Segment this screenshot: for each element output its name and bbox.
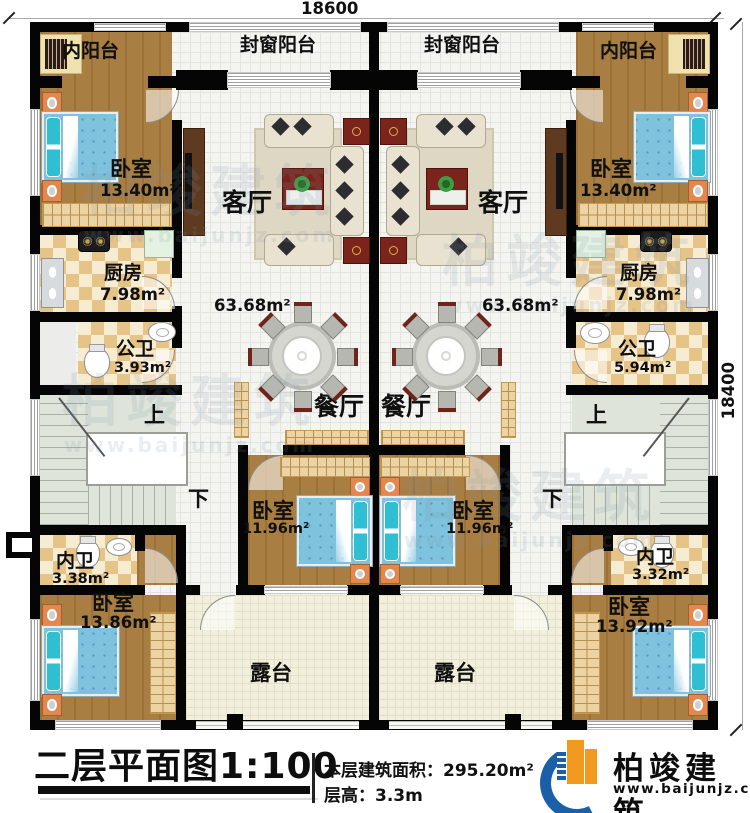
plan-title: 二层平面图1:100 [34, 737, 339, 789]
window [709, 620, 717, 700]
brand-logo-windows [557, 750, 566, 782]
fridge-icon [576, 230, 606, 258]
floor-area-text: 本层建筑面积：295.20m² [324, 756, 534, 781]
column-nub-inner [12, 538, 32, 552]
wall [483, 585, 512, 595]
wall [566, 120, 576, 232]
wardrobe [280, 457, 370, 477]
floor-height-text: 层高：3.3m [324, 781, 423, 806]
wall [562, 525, 572, 730]
window [265, 587, 347, 593]
terrace-column [227, 714, 243, 730]
dining-chair [481, 348, 499, 366]
bed-bottom-left [42, 626, 119, 696]
stove-icon [78, 230, 110, 252]
sofa [264, 234, 334, 266]
label-publicbath-left: 公卫 [116, 340, 154, 360]
coffee-table-glass [286, 190, 322, 206]
title-underline [38, 786, 310, 794]
label-kitchen-left: 厨房 [104, 264, 142, 284]
nightstand [42, 694, 62, 716]
wall [347, 585, 369, 595]
label-living-right: 客厅 [478, 190, 528, 216]
wall [548, 585, 562, 595]
wall [186, 585, 200, 595]
wall [176, 525, 186, 730]
window [588, 721, 692, 729]
wall [30, 76, 62, 88]
nightstand [350, 477, 370, 497]
window [388, 23, 558, 31]
label-unit-area-right: 63.68m² [482, 297, 559, 314]
terrace-railing [389, 721, 552, 729]
sideboard [381, 430, 465, 445]
nightstand [380, 564, 400, 584]
dining-chair [438, 305, 456, 323]
dimension-line-right [742, 22, 743, 730]
window [401, 587, 483, 593]
wall [603, 535, 613, 551]
wall [236, 585, 265, 595]
bed-top-left [42, 112, 118, 182]
label-kitchen-left-area: 7.98m² [100, 286, 165, 303]
brand-logo-building [585, 749, 597, 784]
label-bedroom-mid-right: 卧室 [452, 500, 494, 522]
label-bedroom-bl-area: 13.86m² [80, 614, 157, 631]
label-bedroom-mid-left-area: 11.96m² [242, 522, 309, 537]
wall [135, 535, 145, 551]
label-bedroom-bl: 卧室 [92, 592, 134, 614]
bed-bottom-right [633, 626, 710, 696]
wall [686, 76, 718, 88]
window [709, 255, 717, 310]
dimension-right-label: 18400 [720, 362, 737, 419]
label-inner-balcony-left: 内阳台 [62, 42, 119, 62]
side-table [343, 118, 370, 145]
wall [566, 385, 718, 395]
dining-table-right [416, 326, 476, 386]
wall [379, 585, 401, 595]
label-living-left: 客厅 [222, 190, 272, 216]
title-divider [312, 753, 315, 803]
fridge-icon [144, 230, 174, 258]
cabinet [234, 382, 249, 438]
dimension-tick [730, 18, 743, 31]
label-bedroom-tr-area: 13.40m² [580, 182, 657, 199]
brand-website: www.baijunjz.com [613, 781, 750, 797]
label-privatebath-left: 内卫 [56, 552, 94, 572]
label-publicbath-left-area: 3.93m² [114, 361, 171, 376]
label-privatebath-right-area: 3.32m² [632, 568, 689, 583]
label-stairs-up-right: 上 [586, 404, 607, 426]
dimension-top-label: 18600 [301, 0, 358, 17]
label-bedroom-mid-left: 卧室 [252, 500, 294, 522]
stairs-landing [564, 432, 666, 486]
label-privatebath-left-area: 3.38m² [52, 572, 109, 587]
kitchen-sink [41, 258, 64, 308]
wall-central [369, 22, 379, 730]
nightstand [42, 604, 62, 626]
window [56, 721, 160, 729]
label-kitchen-right-area: 7.98m² [616, 286, 681, 303]
wall [30, 385, 182, 395]
wall [566, 235, 576, 278]
label-stairs-down-left: 下 [188, 488, 209, 510]
nightstand [380, 477, 400, 497]
label-inner-balcony-right: 内阳台 [600, 42, 657, 62]
label-terrace-left: 露台 [250, 662, 292, 684]
bed-top-right [634, 112, 710, 182]
wall [379, 445, 465, 455]
dining-chair [395, 348, 413, 366]
wall [283, 445, 369, 455]
nightstand [688, 604, 708, 626]
window [31, 255, 39, 310]
window [709, 110, 717, 195]
dining-table-left [272, 326, 332, 386]
toilet-icon [84, 348, 110, 378]
label-terrace-right: 露台 [434, 662, 476, 684]
sofa [416, 234, 486, 266]
bath-sink [580, 322, 610, 344]
nightstand [350, 564, 370, 584]
terrace-column [505, 714, 521, 730]
dining-chair [438, 391, 456, 409]
window [31, 110, 39, 195]
plant-icon [438, 176, 454, 192]
window [418, 73, 520, 87]
wall [500, 445, 510, 590]
window [95, 24, 165, 30]
stove-icon [640, 230, 672, 252]
label-stairs-up-left: 上 [144, 404, 165, 426]
coffee-table-glass [430, 190, 466, 206]
nightstand [688, 694, 708, 716]
wardrobe [578, 203, 708, 227]
wall [566, 322, 576, 348]
shaft-left [40, 322, 76, 385]
dimension-line-top [8, 18, 724, 19]
kitchen-sink [686, 258, 709, 308]
label-sealed-balcony-right: 封窗阳台 [424, 36, 500, 56]
window [583, 24, 653, 30]
sideboard [285, 430, 369, 445]
label-bedroom-tr: 卧室 [590, 158, 632, 180]
terrace-railing [196, 721, 359, 729]
label-bedroom-tl: 卧室 [110, 158, 152, 180]
stairs-steps [572, 486, 660, 525]
side-table [380, 237, 407, 264]
label-bedroom-br: 卧室 [608, 596, 650, 618]
label-sealed-balcony-left: 封窗阳台 [240, 36, 316, 56]
stairs-steps [40, 395, 88, 525]
side-table [380, 118, 407, 145]
wall [566, 76, 600, 88]
wardrobe [42, 203, 172, 227]
nightstand [42, 180, 62, 202]
wall [30, 312, 182, 322]
window [228, 73, 330, 87]
window [31, 400, 39, 475]
wall [30, 525, 182, 535]
brand-name: 柏竣建筑 [613, 743, 750, 813]
label-stairs-down-right: 下 [542, 488, 563, 510]
label-publicbath-right-area: 5.94m² [614, 361, 671, 376]
title-underline-thin [40, 798, 318, 800]
label-dining-right: 餐厅 [381, 394, 431, 420]
label-privatebath-right: 内卫 [636, 548, 674, 568]
stairs-steps [88, 486, 176, 525]
bath-sink [106, 538, 132, 556]
window [709, 400, 717, 475]
wall [520, 70, 572, 90]
stairs-landing [86, 432, 188, 486]
label-publicbath-right: 公卫 [618, 340, 656, 360]
window [190, 23, 360, 31]
sofa [416, 114, 486, 148]
cabinet [501, 382, 516, 438]
wall [566, 312, 718, 322]
bed-mid-right [380, 496, 455, 566]
tv-icon [185, 153, 192, 209]
tv-icon [556, 153, 563, 209]
wall [172, 120, 182, 232]
brand-logo-building [567, 740, 584, 784]
dimension-tick [730, 724, 743, 737]
plant-icon [294, 176, 310, 192]
wall [566, 525, 718, 535]
wall [379, 70, 418, 90]
nightstand [688, 180, 708, 202]
stairs-steps [660, 395, 708, 525]
nightstand [688, 92, 708, 114]
side-table [343, 237, 370, 264]
nightstand [42, 92, 62, 114]
dining-chair [251, 348, 269, 366]
label-bedroom-tl-area: 13.40m² [100, 182, 177, 199]
wall [176, 70, 228, 90]
floor-plan-page: 18600 18400 [0, 0, 750, 813]
dining-chair [294, 391, 312, 409]
label-unit-area-left: 63.68m² [214, 297, 291, 314]
dining-chair [337, 348, 355, 366]
label-bedroom-br-area: 13.92m² [596, 618, 673, 635]
wall [603, 585, 718, 595]
window [31, 620, 39, 700]
label-bedroom-mid-right-area: 11.96m² [446, 522, 513, 537]
wardrobe [380, 457, 470, 477]
label-kitchen-right: 厨房 [620, 264, 658, 284]
dining-chair [294, 305, 312, 323]
wall [330, 70, 369, 90]
wall [238, 445, 248, 590]
balcony-cabinet [668, 34, 710, 74]
